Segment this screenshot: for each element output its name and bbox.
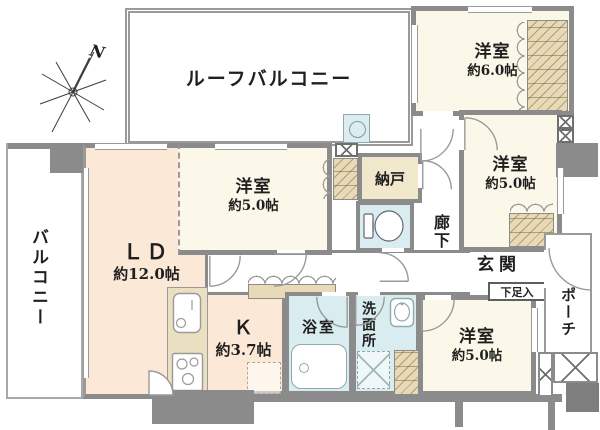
storage-room-label: 納戸 (375, 168, 405, 189)
bedroom-center: 洋室 約5.0帖 (178, 143, 332, 255)
balcony-label: バルコニー (26, 228, 51, 328)
window (215, 143, 287, 150)
entrance-label: 玄関 (477, 250, 521, 275)
door-arc (421, 298, 455, 332)
door-opening (423, 111, 453, 116)
door-arc (422, 160, 452, 190)
bedroom-northeast-label: 洋室 約6.0帖 (467, 41, 518, 81)
pipe-space-icon (557, 115, 574, 129)
window (468, 6, 532, 13)
door-arc (316, 296, 348, 328)
hallway-label: 廊下 (428, 214, 452, 250)
door-opening (544, 250, 547, 288)
door-arc (148, 370, 174, 396)
washing-machine-icon (357, 351, 390, 389)
wall-segment (548, 397, 555, 430)
closet (527, 20, 568, 112)
shaft-void (538, 352, 553, 397)
roof-balcony-label: ルーフバルコニー (186, 64, 352, 91)
folding-door (318, 159, 331, 199)
kitchen-sink-icon (172, 292, 202, 334)
bedroom-center-label: 洋室 約5.0帖 (228, 176, 279, 222)
wall-segment (205, 394, 562, 402)
folding-door (512, 22, 525, 110)
washbasin-icon (389, 297, 415, 328)
folding-door (510, 199, 553, 212)
closet (394, 350, 420, 395)
closet (333, 158, 358, 200)
toilet-icon (362, 206, 408, 246)
window (83, 168, 89, 378)
storage-room: 納戸 (358, 153, 422, 203)
window (411, 25, 418, 103)
wall-segment (50, 143, 83, 173)
pipe-space-icon (557, 129, 574, 143)
porch-label: ポーチ (558, 287, 579, 338)
door-arc (420, 127, 454, 163)
wall-segment (455, 397, 463, 427)
door-arc (379, 252, 409, 282)
wall-block (566, 383, 599, 412)
door-arc (464, 117, 498, 151)
slop-sink-icon (343, 114, 370, 143)
floor-plan: ルーフバルコニー N バルコニー ＬＤ 約12.0帖 Ｋ 約3.7帖 (0, 0, 600, 430)
window (95, 143, 167, 150)
bedroom-southeast-label: 洋室 約5.0帖 (452, 326, 503, 366)
stove-icon (171, 352, 204, 392)
shoe-cabinet: 下足入 (488, 282, 546, 301)
corridor (205, 250, 470, 295)
door-arc (209, 255, 241, 287)
door-arc (355, 296, 385, 326)
shoe-cabinet-label: 下足入 (501, 284, 534, 300)
window (531, 308, 538, 352)
door-arc (273, 253, 307, 287)
entrance-door-arc (548, 247, 592, 291)
window (557, 168, 564, 214)
pipe-space-icon (335, 143, 358, 157)
shaft-void (553, 352, 598, 383)
bathtub-icon (291, 344, 347, 389)
